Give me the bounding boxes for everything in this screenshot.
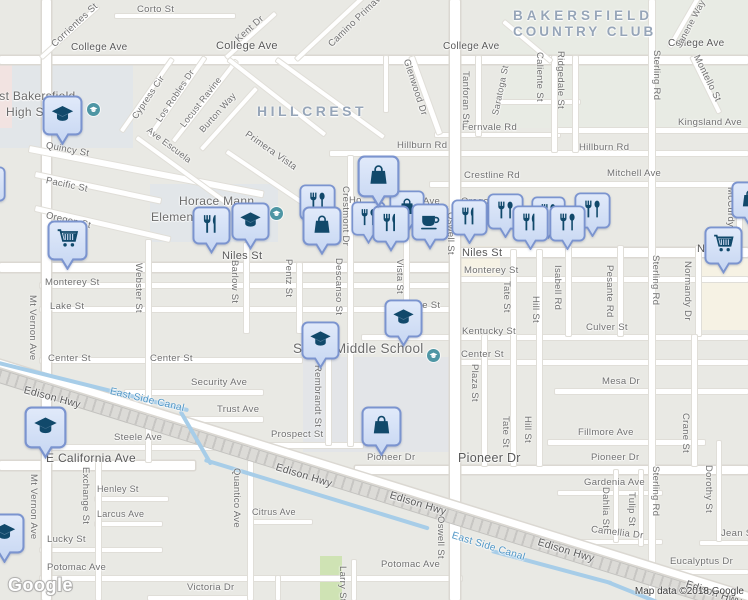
pin-cart[interactable] — [704, 226, 743, 274]
street-label: Center St — [150, 353, 193, 364]
road — [384, 56, 388, 112]
street-label: College Ave — [71, 42, 128, 53]
school-poi-dot[interactable] — [270, 207, 283, 220]
street-label: Rembrandt St — [312, 365, 323, 427]
street-label: Descanso St — [333, 258, 344, 315]
street-label: College Ave — [216, 40, 278, 52]
street-label: Monterey St — [464, 265, 519, 276]
road — [276, 58, 385, 139]
pin-grad[interactable] — [24, 406, 67, 459]
map-screenshot: Corto StCollege AveCollege AveCollege Av… — [0, 0, 748, 600]
street-label: Larcus Ave — [97, 509, 144, 519]
area-label: COUNTRY CLUB — [513, 24, 656, 39]
street-label: Isabell Rd — [552, 265, 563, 310]
street-label: Normandy Dr — [682, 261, 693, 321]
pin-bag[interactable] — [361, 406, 402, 456]
school-poi-dot[interactable] — [87, 103, 100, 116]
street-label: Corto St — [137, 4, 174, 15]
road — [692, 335, 697, 466]
pin-bag[interactable] — [0, 166, 6, 210]
street-label: Prospect St — [271, 429, 323, 440]
pin-grad[interactable] — [231, 202, 270, 250]
street-label: Oswell St — [435, 516, 446, 559]
street-label: Trust Ave — [217, 404, 259, 415]
road — [0, 56, 748, 64]
street-label: Center St — [461, 349, 504, 360]
street-label: Pioneer Dr — [591, 452, 639, 463]
pin-fork-spoon[interactable] — [549, 205, 586, 250]
street-label: Kingsland Ave — [678, 117, 742, 128]
street-label: Eucalyptus Dr — [670, 556, 733, 567]
road — [115, 14, 235, 18]
pin-restaurant[interactable] — [451, 199, 488, 244]
graduation-cap-icon — [89, 105, 98, 114]
street-label: Center St — [48, 353, 91, 364]
road — [228, 58, 327, 136]
road — [566, 246, 571, 336]
road — [248, 520, 312, 524]
street-label: Quantico Ave — [231, 468, 242, 528]
road — [96, 461, 101, 600]
road — [430, 182, 748, 187]
pin-grad[interactable] — [301, 321, 340, 369]
road — [276, 576, 280, 600]
pin-bag[interactable] — [302, 206, 342, 255]
pin-grad[interactable] — [0, 513, 25, 563]
street-label: Fernvale Rd — [462, 122, 517, 133]
street-label: Hillburn Rd — [397, 140, 447, 151]
road — [95, 522, 162, 526]
street-label: Pesante Rd — [604, 265, 615, 318]
street-label: Caliente St — [534, 52, 545, 102]
street-label: Steele Ave — [114, 432, 162, 443]
area-label: BAKERSFIELD — [513, 8, 653, 23]
street-label: Lake St — [50, 301, 84, 312]
street-label: Potomac Ave — [47, 562, 106, 573]
street-label: Tate St — [500, 416, 511, 448]
pin-restaurant[interactable] — [372, 205, 410, 252]
street-label: Hill St — [530, 296, 541, 323]
school-poi-dot[interactable] — [427, 349, 440, 362]
street-label: Tanforan St — [460, 71, 471, 123]
pin-bag[interactable] — [731, 181, 748, 228]
street-label: Mt Vernon Ave — [27, 295, 38, 361]
pin-grad[interactable] — [42, 95, 83, 145]
street-label: Henley St — [97, 484, 139, 494]
pin-bag[interactable] — [357, 155, 400, 208]
road — [573, 56, 578, 152]
street-label: Fillmore Ave — [578, 427, 634, 438]
street-label: Mt Vernon Ave — [28, 474, 39, 540]
street-label: Sterling Rd — [650, 466, 661, 516]
street-label: Kentucky St — [462, 326, 516, 337]
road — [700, 541, 748, 545]
street-label: Crestline Rd — [464, 170, 520, 181]
pin-coffee[interactable] — [411, 203, 449, 250]
street-label: Pentz St — [283, 259, 294, 297]
street-label: Citrus Ave — [252, 507, 296, 517]
street-label: Crane St — [680, 413, 691, 453]
street-label: Pioneer Dr — [458, 451, 521, 465]
street-label: Exchange St — [80, 467, 91, 524]
street-label: College Ave — [443, 41, 500, 52]
street-label: Niles St — [462, 247, 502, 259]
graduation-cap-icon — [429, 351, 438, 360]
street-label: Tate St — [501, 281, 512, 313]
road — [537, 250, 542, 466]
street-label: Lucky St — [47, 534, 86, 545]
street-label: Culver St — [586, 322, 628, 333]
pin-cart[interactable] — [47, 220, 88, 270]
google-watermark[interactable]: Google — [8, 575, 73, 596]
road — [95, 497, 168, 501]
road — [248, 461, 253, 600]
street-label: Dorothy St — [703, 465, 714, 513]
road — [295, 0, 365, 61]
map-canvas[interactable]: Corto StCollege AveCollege AveCollege Av… — [0, 0, 748, 600]
street-label: Webster St — [133, 263, 144, 313]
map-attribution: Map data ©2018 Google — [635, 586, 744, 597]
road — [717, 441, 721, 541]
street-label: Victoria Dr — [187, 582, 234, 593]
street-label: Barlow St — [229, 260, 240, 303]
road — [455, 277, 748, 282]
street-label: Dahlia St — [600, 487, 611, 528]
street-label: Jean St — [721, 528, 748, 539]
street-label: Hillburn Rd — [579, 142, 629, 153]
street-label: Potomac Ave — [381, 559, 440, 570]
street-label: Mitchell Ave — [607, 168, 661, 179]
pin-restaurant[interactable] — [512, 205, 549, 250]
road — [455, 360, 748, 365]
street-label: Ridgedale St — [555, 51, 566, 109]
street-label: Sterling Rd — [650, 255, 661, 305]
street-label: Plaza St — [469, 364, 480, 402]
street-label: Sterling Rd — [651, 50, 662, 100]
pin-restaurant[interactable] — [192, 206, 231, 254]
graduation-cap-icon — [272, 209, 281, 218]
pin-grad[interactable] — [384, 299, 423, 347]
road — [696, 246, 701, 336]
street-label: Monterey St — [45, 277, 100, 288]
road — [352, 560, 356, 600]
road — [148, 596, 252, 600]
street-label: Tulip St — [626, 492, 637, 526]
street-label: Hill St — [522, 416, 533, 443]
street-label: Security Ave — [191, 377, 247, 388]
street-label: Larry St — [337, 566, 348, 600]
street-label: Mesa Dr — [602, 376, 640, 387]
road — [355, 466, 748, 474]
area-label: HILLCREST — [257, 103, 367, 119]
street-label: Gardenia Ave — [584, 477, 645, 488]
street-label: Vista St — [394, 259, 405, 294]
road — [40, 548, 162, 552]
